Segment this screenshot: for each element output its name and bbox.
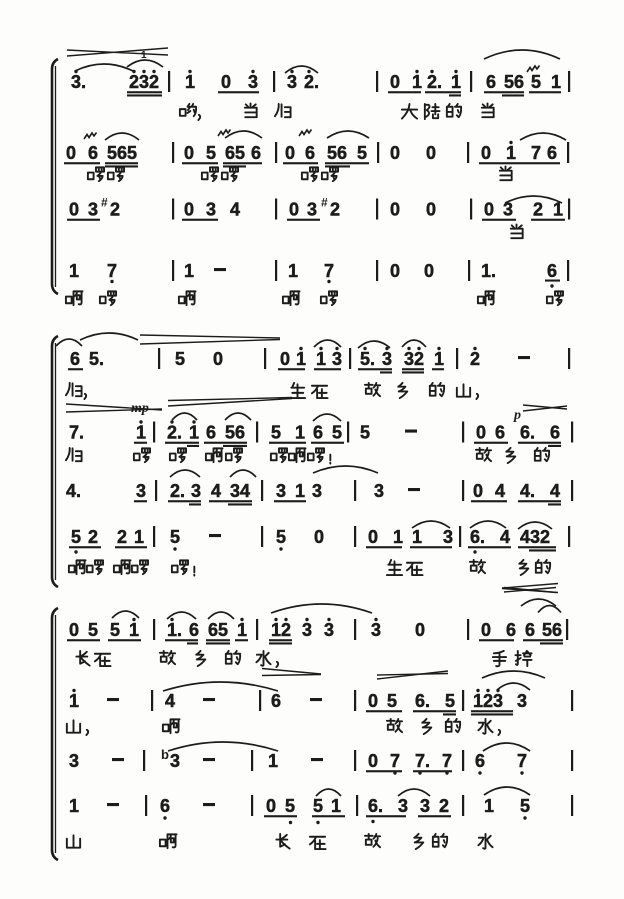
svg-text:5: 5 — [445, 691, 455, 711]
svg-text:0: 0 — [481, 143, 491, 163]
svg-text:7: 7 — [531, 143, 541, 163]
svg-text:2.: 2. — [427, 72, 442, 92]
svg-text:3: 3 — [420, 796, 430, 816]
svg-text:1: 1 — [451, 72, 461, 92]
svg-text:3: 3 — [324, 620, 334, 640]
svg-text:5: 5 — [520, 796, 530, 816]
svg-text:0: 0 — [368, 527, 378, 547]
svg-text:3: 3 — [136, 481, 146, 501]
svg-text:2: 2 — [470, 349, 480, 369]
svg-text:1: 1 — [288, 261, 298, 281]
svg-text:0: 0 — [289, 200, 299, 220]
svg-text:0: 0 — [390, 261, 400, 281]
svg-text:6: 6 — [486, 72, 496, 92]
svg-text:5: 5 — [271, 423, 281, 443]
svg-text:3: 3 — [371, 620, 381, 640]
svg-text:565: 565 — [107, 143, 137, 163]
svg-text:0: 0 — [221, 72, 231, 92]
svg-text:7: 7 — [390, 751, 400, 771]
svg-text:2: 2 — [88, 527, 98, 547]
svg-text:5: 5 — [313, 796, 323, 816]
svg-text:1: 1 — [69, 261, 79, 281]
svg-text:1.: 1. — [481, 261, 496, 281]
svg-text:7.: 7. — [415, 751, 430, 771]
svg-text:5: 5 — [387, 691, 397, 711]
svg-text:56: 56 — [225, 423, 245, 443]
svg-text:1: 1 — [316, 349, 326, 369]
svg-text:6: 6 — [251, 143, 261, 163]
svg-text:3: 3 — [382, 349, 392, 369]
svg-text:b: b — [161, 747, 169, 762]
svg-text:4: 4 — [550, 481, 560, 501]
svg-text:3: 3 — [69, 751, 79, 771]
svg-text:6: 6 — [189, 620, 199, 640]
svg-text:7.: 7. — [69, 423, 84, 443]
svg-text:5: 5 — [110, 620, 120, 640]
svg-text:0: 0 — [266, 796, 276, 816]
svg-text:0: 0 — [426, 200, 436, 220]
svg-text:0: 0 — [280, 349, 290, 369]
svg-text:6: 6 — [547, 143, 557, 163]
svg-text:0: 0 — [481, 620, 491, 640]
svg-text:3: 3 — [88, 200, 98, 220]
svg-text:3: 3 — [287, 72, 297, 92]
svg-text:7: 7 — [324, 261, 334, 281]
svg-text:3: 3 — [307, 200, 317, 220]
svg-text:6: 6 — [506, 620, 516, 640]
svg-text:0: 0 — [368, 691, 378, 711]
svg-text:7: 7 — [442, 751, 452, 771]
svg-text:32: 32 — [404, 349, 424, 369]
svg-text:6: 6 — [475, 751, 485, 771]
svg-text:6: 6 — [206, 423, 216, 443]
svg-text:1: 1 — [295, 423, 305, 443]
svg-text:0: 0 — [314, 527, 324, 547]
svg-text:6.: 6. — [470, 527, 485, 547]
svg-text:65: 65 — [225, 143, 245, 163]
svg-text:3: 3 — [206, 200, 216, 220]
svg-text:6: 6 — [313, 423, 323, 443]
svg-text:5: 5 — [88, 620, 98, 640]
svg-text:1: 1 — [268, 751, 278, 771]
svg-text:2.: 2. — [304, 72, 319, 92]
svg-text:3: 3 — [170, 751, 180, 771]
svg-text:432: 432 — [520, 527, 550, 547]
svg-text:5: 5 — [285, 796, 295, 816]
svg-text:0: 0 — [66, 143, 76, 163]
svg-text:0: 0 — [390, 143, 400, 163]
svg-text:1: 1 — [331, 796, 341, 816]
svg-text:1: 1 — [141, 50, 147, 61]
svg-text:56: 56 — [327, 143, 347, 163]
svg-text:0: 0 — [390, 200, 400, 220]
svg-text:2: 2 — [110, 200, 120, 220]
svg-text:0: 0 — [484, 200, 494, 220]
svg-text:6: 6 — [495, 423, 505, 443]
svg-text:0: 0 — [415, 620, 425, 640]
svg-text:56: 56 — [504, 72, 524, 92]
svg-text:3: 3 — [443, 527, 453, 547]
svg-text:1.: 1. — [167, 620, 182, 640]
svg-text:1: 1 — [185, 72, 195, 92]
svg-text:5: 5 — [206, 143, 216, 163]
svg-text:3: 3 — [276, 481, 286, 501]
svg-text:2: 2 — [117, 527, 127, 547]
svg-text:6: 6 — [271, 691, 281, 711]
svg-text:1: 1 — [184, 261, 194, 281]
svg-text:2.: 2. — [167, 423, 182, 443]
svg-text:4: 4 — [165, 691, 175, 711]
svg-text:0: 0 — [424, 261, 434, 281]
svg-text:3: 3 — [374, 481, 384, 501]
svg-text:3: 3 — [312, 481, 322, 501]
svg-text:p: p — [513, 408, 521, 423]
svg-text:1: 1 — [189, 423, 199, 443]
svg-text:12: 12 — [271, 620, 291, 640]
svg-text:0: 0 — [476, 423, 486, 443]
svg-text:1: 1 — [551, 72, 561, 92]
svg-text:6: 6 — [160, 796, 170, 816]
svg-text:6.: 6. — [368, 796, 383, 816]
svg-text:56: 56 — [542, 620, 562, 640]
svg-text:2: 2 — [439, 796, 449, 816]
svg-text:1: 1 — [69, 796, 79, 816]
svg-text:1: 1 — [295, 481, 305, 501]
svg-text:7: 7 — [107, 261, 117, 281]
svg-text:123: 123 — [473, 691, 503, 711]
svg-text:2: 2 — [533, 200, 543, 220]
svg-text:6: 6 — [547, 261, 557, 281]
svg-text:1: 1 — [506, 143, 516, 163]
svg-text:4.: 4. — [66, 481, 81, 501]
svg-text:6: 6 — [305, 143, 315, 163]
svg-text:4.: 4. — [520, 481, 535, 501]
svg-text:5: 5 — [360, 423, 370, 443]
svg-text:5: 5 — [531, 72, 541, 92]
svg-text:2: 2 — [330, 200, 340, 220]
svg-text:1: 1 — [69, 691, 79, 711]
svg-text:7: 7 — [517, 751, 527, 771]
svg-text:5: 5 — [170, 527, 180, 547]
svg-text:3: 3 — [302, 620, 312, 640]
svg-text:232: 232 — [129, 72, 159, 92]
svg-text:1: 1 — [296, 349, 306, 369]
svg-text:5: 5 — [357, 143, 367, 163]
svg-text:1: 1 — [412, 527, 422, 547]
svg-text:0: 0 — [368, 751, 378, 771]
svg-text:1: 1 — [434, 349, 444, 369]
svg-text:3: 3 — [517, 691, 527, 711]
svg-text:1: 1 — [134, 527, 144, 547]
svg-text:6: 6 — [70, 349, 80, 369]
svg-text:1: 1 — [393, 527, 403, 547]
svg-text:4: 4 — [495, 481, 505, 501]
svg-text:0: 0 — [473, 481, 483, 501]
svg-text:5: 5 — [276, 527, 286, 547]
svg-text:1: 1 — [136, 423, 146, 443]
svg-text:0: 0 — [69, 200, 79, 220]
svg-text:4: 4 — [211, 481, 221, 501]
svg-text:0: 0 — [390, 72, 400, 92]
svg-text:#: # — [321, 196, 328, 210]
svg-text:6: 6 — [550, 423, 560, 443]
svg-text:3.: 3. — [71, 72, 86, 92]
svg-text:0: 0 — [69, 620, 79, 640]
svg-text:0: 0 — [184, 143, 194, 163]
svg-text:3: 3 — [398, 796, 408, 816]
svg-text:#: # — [101, 196, 108, 210]
svg-text:3: 3 — [191, 481, 201, 501]
svg-text:0: 0 — [213, 349, 223, 369]
svg-text:5: 5 — [175, 349, 185, 369]
svg-text:1: 1 — [484, 796, 494, 816]
svg-text:6.: 6. — [415, 691, 430, 711]
svg-text:5.: 5. — [89, 349, 104, 369]
svg-text:5: 5 — [332, 423, 342, 443]
svg-text:65: 65 — [208, 620, 228, 640]
svg-text:1: 1 — [129, 620, 139, 640]
svg-text:5.: 5. — [360, 349, 375, 369]
svg-text:4: 4 — [500, 527, 510, 547]
svg-text:6.: 6. — [520, 423, 535, 443]
svg-text:34: 34 — [230, 481, 250, 501]
svg-text:6: 6 — [88, 143, 98, 163]
svg-text:5: 5 — [71, 527, 81, 547]
svg-text:0: 0 — [184, 200, 194, 220]
svg-text:6: 6 — [525, 620, 535, 640]
svg-text:3: 3 — [248, 72, 258, 92]
svg-text:3: 3 — [332, 349, 342, 369]
svg-text:0: 0 — [426, 143, 436, 163]
svg-text:2.: 2. — [170, 481, 185, 501]
svg-text:1: 1 — [412, 72, 422, 92]
svg-text:1: 1 — [237, 620, 247, 640]
svg-text:0: 0 — [285, 143, 295, 163]
svg-text:4: 4 — [230, 200, 240, 220]
